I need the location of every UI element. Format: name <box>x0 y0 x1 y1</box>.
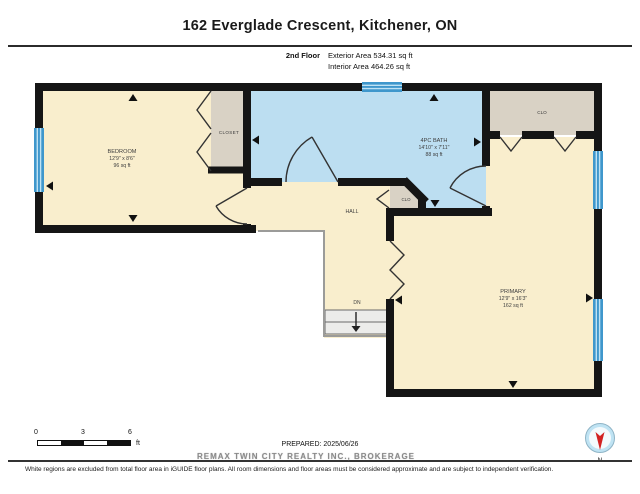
primary-closet-label: CLO <box>537 110 547 115</box>
floor-plan-page: 162 Everglade Crescent, Kitchener, ON 2n… <box>0 0 640 494</box>
bedroom-dims: 12'9" x 8'6" <box>109 156 135 162</box>
hall-closet-label: CLO <box>401 197 411 202</box>
primary-area: 162 sq ft <box>503 303 523 309</box>
bedroom-name: BEDROOM <box>108 149 137 155</box>
title-divider <box>8 45 632 47</box>
north-compass: N <box>583 422 619 464</box>
scale-tick-3: 3 <box>81 429 85 436</box>
bath-dims: 14'10" x 7'11" <box>419 145 450 151</box>
floor-plan-drawing: BEDROOM 12'9" x 8'6" 96 sq ft CLOSET 4PC… <box>20 75 620 405</box>
brokerage-watermark: REMAX TWIN CITY REALTY INC., BROKERAGE <box>197 452 415 461</box>
room-fills <box>39 87 598 393</box>
disclaimer-text: White regions are excluded from total fl… <box>25 466 625 473</box>
bedroom-closet-label: CLOSET <box>219 130 239 135</box>
interior-area-text: Interior Area 464.26 sq ft <box>328 62 410 71</box>
stairs-dn-label: DN <box>353 300 361 306</box>
bedroom-area: 96 sq ft <box>113 163 131 169</box>
bath-area: 88 sq ft <box>425 152 443 158</box>
scale-tick-6: 6 <box>128 429 132 436</box>
primary-dims: 12'9" x 16'3" <box>499 296 528 302</box>
scale-tick-0: 0 <box>34 429 38 436</box>
prepared-date: PREPARED: 2025/06/26 <box>0 441 640 448</box>
hall-label: HALL <box>346 209 359 215</box>
primary-name: PRIMARY <box>500 289 526 295</box>
floor-label: 2nd Floor <box>150 51 320 60</box>
exterior-area-text: Exterior Area 534.31 sq ft <box>328 51 413 60</box>
bath-name: 4PC BATH <box>421 138 448 144</box>
page-title: 162 Everglade Crescent, Kitchener, ON <box>0 18 640 34</box>
stairs <box>325 310 387 334</box>
